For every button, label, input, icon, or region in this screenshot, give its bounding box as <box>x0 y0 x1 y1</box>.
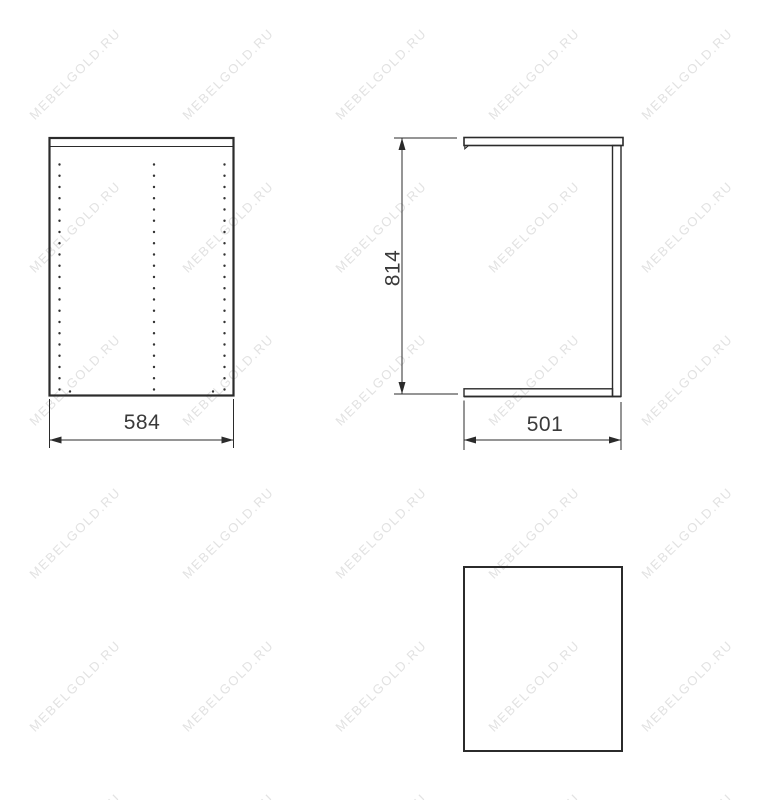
pin-hole <box>223 231 225 233</box>
pin-hole <box>153 197 155 199</box>
pin-hole <box>58 321 60 323</box>
pin-hole <box>223 276 225 278</box>
pin-hole <box>223 242 225 244</box>
pin-hole <box>212 390 214 392</box>
pin-hole <box>223 197 225 199</box>
pin-hole <box>58 197 60 199</box>
pin-hole <box>58 163 60 165</box>
pin-hole <box>153 242 155 244</box>
pin-hole <box>223 186 225 188</box>
pin-hole <box>153 253 155 255</box>
pin-hole <box>58 298 60 300</box>
pin-hole <box>58 253 60 255</box>
pin-hole <box>223 253 225 255</box>
pin-hole <box>69 390 71 392</box>
arrowhead-down-icon <box>399 382 406 394</box>
pin-hole <box>153 265 155 267</box>
pin-hole <box>223 220 225 222</box>
pin-hole <box>58 377 60 379</box>
pin-hole <box>223 265 225 267</box>
drawing-svg: 584 814 501 <box>0 0 780 800</box>
pin-hole <box>223 343 225 345</box>
pin-hole <box>58 388 60 390</box>
pin-hole <box>58 186 60 188</box>
pin-hole <box>223 175 225 177</box>
pin-hole <box>223 321 225 323</box>
depth-dimension: 501 <box>464 401 621 451</box>
pin-hole <box>153 321 155 323</box>
pin-hole <box>58 366 60 368</box>
pin-hole <box>58 355 60 357</box>
pin-hole <box>223 287 225 289</box>
depth-dimension-label: 501 <box>527 413 564 436</box>
pin-hole <box>223 163 225 165</box>
pin-hole <box>223 355 225 357</box>
width-dimension-label: 584 <box>124 411 161 434</box>
pin-hole <box>58 175 60 177</box>
pin-hole <box>153 186 155 188</box>
pin-hole <box>58 343 60 345</box>
pin-hole <box>153 355 155 357</box>
pin-hole <box>223 208 225 210</box>
pin-hole <box>153 298 155 300</box>
arrowhead-left-icon <box>464 437 476 444</box>
height-dimension-label: 814 <box>382 250 405 287</box>
arrowhead-up-icon <box>399 138 406 150</box>
bottom-panel <box>464 389 613 397</box>
pin-hole <box>58 220 60 222</box>
pin-hole <box>223 377 225 379</box>
pin-hole <box>153 388 155 390</box>
pin-hole <box>153 175 155 177</box>
pin-hole <box>153 163 155 165</box>
side-view <box>464 138 623 397</box>
back-panel <box>613 146 622 397</box>
arrowhead-right-icon <box>609 437 621 444</box>
pin-hole <box>58 310 60 312</box>
pin-hole <box>223 332 225 334</box>
pin-hole <box>153 220 155 222</box>
pin-hole <box>58 332 60 334</box>
pin-hole <box>223 388 225 390</box>
shelf-pin-holes <box>58 163 225 392</box>
pin-hole <box>153 377 155 379</box>
pin-hole <box>153 343 155 345</box>
pin-hole <box>58 265 60 267</box>
front-view <box>50 138 234 396</box>
pin-hole <box>58 242 60 244</box>
arrowhead-right-icon <box>222 437 234 444</box>
pin-hole <box>153 310 155 312</box>
width-dimension: 584 <box>50 399 234 448</box>
arrowhead-left-icon <box>50 437 62 444</box>
panel-outline <box>464 567 622 751</box>
top-view <box>464 567 622 751</box>
pin-hole <box>58 287 60 289</box>
pin-hole <box>223 298 225 300</box>
pin-hole <box>58 276 60 278</box>
pin-hole <box>223 310 225 312</box>
pin-hole <box>153 287 155 289</box>
pin-hole <box>153 366 155 368</box>
pin-hole <box>153 208 155 210</box>
pin-hole <box>58 231 60 233</box>
pin-hole <box>153 231 155 233</box>
pin-hole <box>223 366 225 368</box>
height-dimension: 814 <box>382 138 459 394</box>
cabinet-front-outline <box>50 138 234 396</box>
pin-hole <box>153 276 155 278</box>
technical-drawing-canvas: MEBELGOLD.RUMEBELGOLD.RUMEBELGOLD.RUMEBE… <box>0 0 780 800</box>
pin-hole <box>58 208 60 210</box>
pin-hole <box>153 332 155 334</box>
top-panel <box>464 138 623 146</box>
